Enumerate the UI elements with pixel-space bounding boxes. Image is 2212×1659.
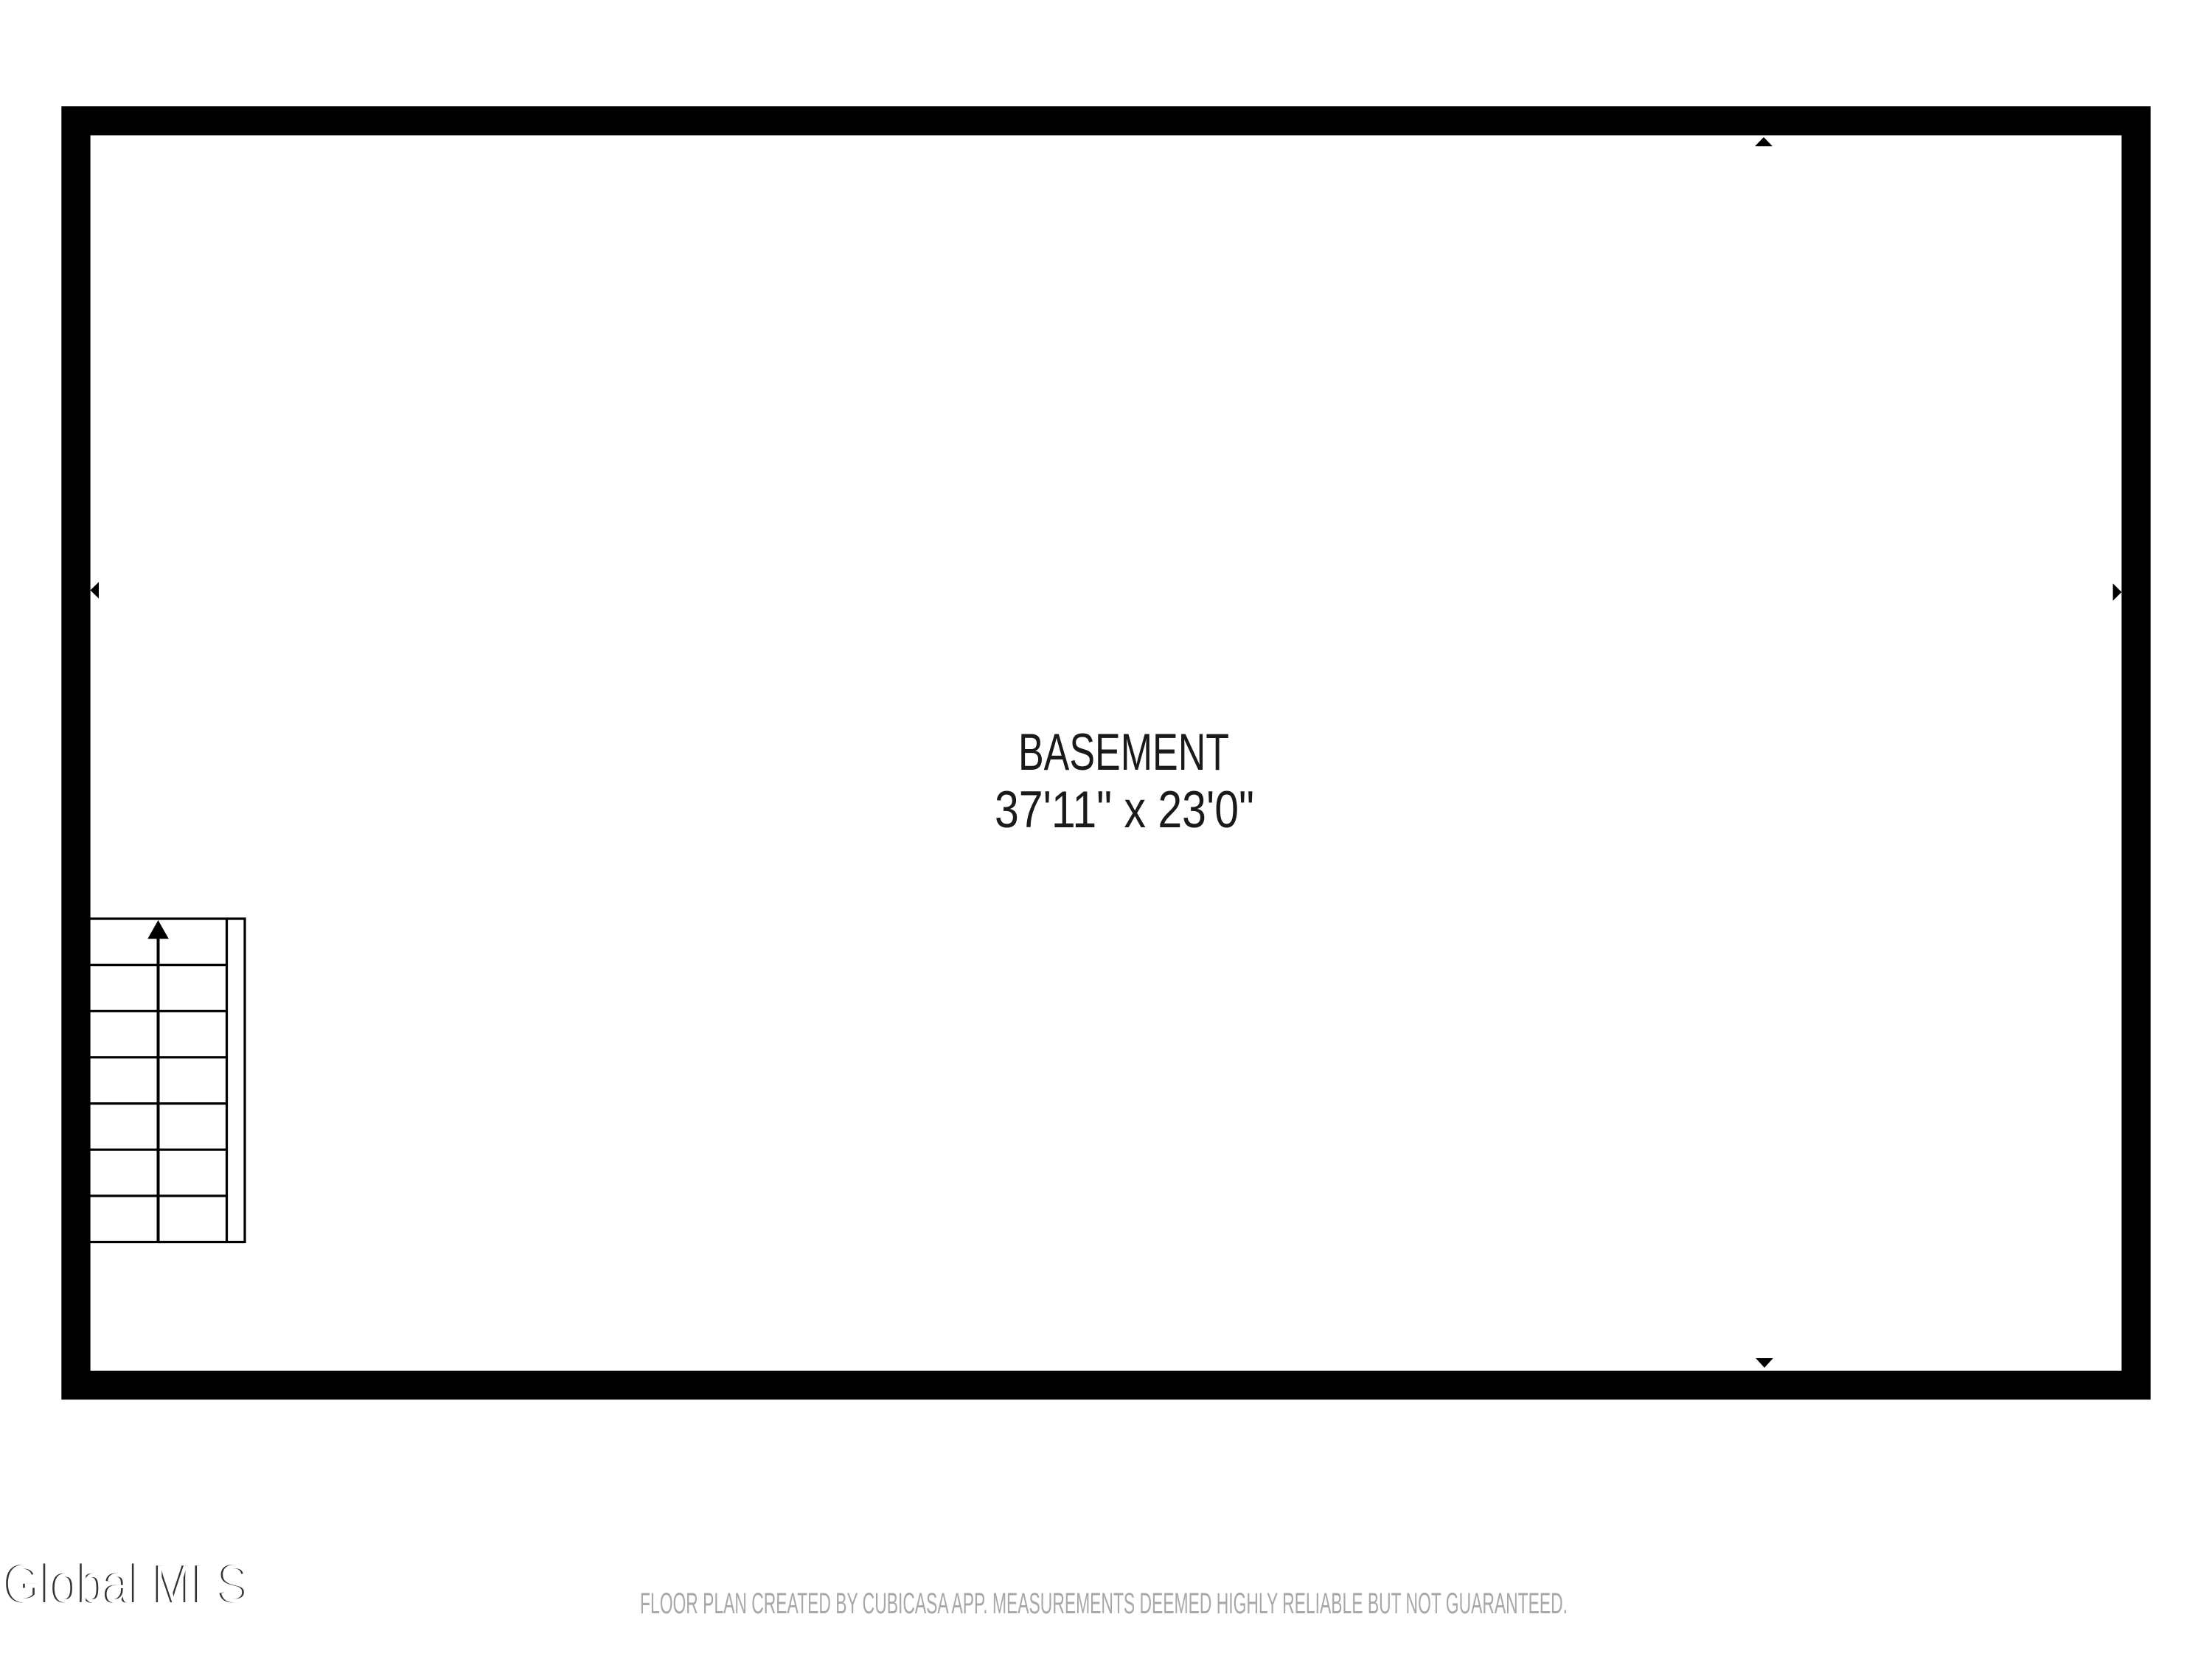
svg-text:BASEMENT: BASEMENT <box>1018 723 1229 781</box>
svg-text:Global MLS: Global MLS <box>6 1555 251 1614</box>
svg-text:37'11" x 23'0": 37'11" x 23'0" <box>995 780 1254 838</box>
svg-text:FLOOR PLAN CREATED BY CUBICASA: FLOOR PLAN CREATED BY CUBICASA APP. MEAS… <box>640 1587 1568 1620</box>
